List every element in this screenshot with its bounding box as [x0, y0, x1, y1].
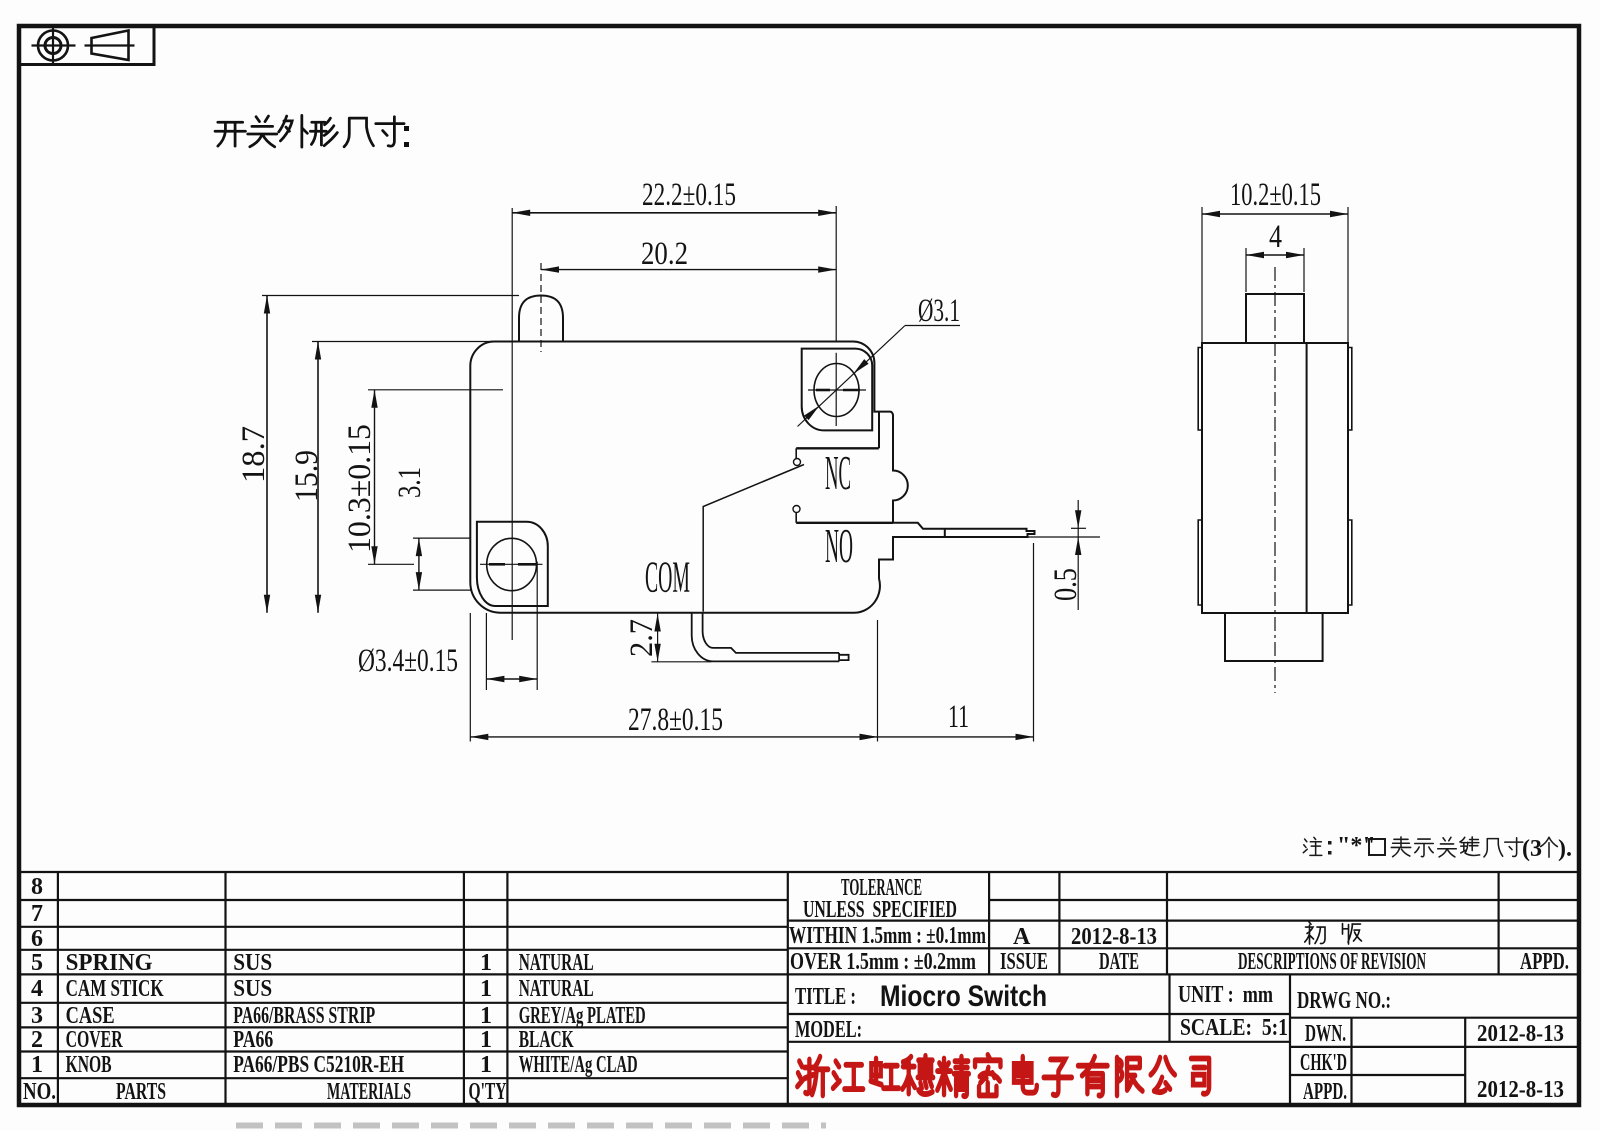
- svg-text:1: 1: [480, 1003, 492, 1029]
- svg-text:APPD.: APPD.: [1520, 949, 1569, 975]
- svg-text:DATE: DATE: [1099, 949, 1139, 975]
- svg-text:).: ).: [1558, 836, 1572, 862]
- svg-text:1: 1: [31, 1052, 43, 1078]
- svg-text:7: 7: [31, 901, 43, 927]
- svg-text:TITLE :: TITLE :: [795, 984, 856, 1010]
- svg-text:(3: (3: [1522, 836, 1542, 862]
- svg-text:PA66/PBS C5210R-EH: PA66/PBS C5210R-EH: [233, 1052, 404, 1078]
- svg-text:NO: NO: [825, 518, 853, 573]
- svg-text:NATURAL: NATURAL: [519, 976, 594, 1002]
- svg-text:CHK'D: CHK'D: [1300, 1050, 1347, 1076]
- svg-text:ISSUE: ISSUE: [1000, 949, 1048, 975]
- svg-text:NO.: NO.: [23, 1079, 56, 1105]
- svg-text:PARTS: PARTS: [116, 1079, 166, 1105]
- svg-text:Q'TY: Q'TY: [469, 1079, 507, 1105]
- svg-text:Ø3.4±0.15: Ø3.4±0.15: [358, 643, 458, 679]
- svg-text:2012-8-13: 2012-8-13: [1477, 1021, 1564, 1047]
- svg-text:WHITE/Ag CLAD: WHITE/Ag CLAD: [519, 1052, 638, 1078]
- svg-text:Ø3.1: Ø3.1: [918, 293, 960, 329]
- svg-text:6: 6: [31, 926, 43, 952]
- svg-text:"*": "*": [1337, 833, 1376, 859]
- svg-text:18.7: 18.7: [236, 426, 272, 483]
- svg-text:15.9: 15.9: [289, 450, 325, 502]
- svg-text:3: 3: [31, 1003, 43, 1029]
- svg-text:3.1: 3.1: [392, 467, 428, 498]
- svg-text:1: 1: [480, 1052, 492, 1078]
- svg-text:CASE: CASE: [66, 1003, 115, 1029]
- svg-text:2012-8-13: 2012-8-13: [1477, 1077, 1564, 1103]
- svg-text:5: 5: [31, 950, 43, 976]
- svg-text:A: A: [1013, 924, 1031, 950]
- svg-text:GREY/Ag PLATED: GREY/Ag PLATED: [519, 1003, 646, 1029]
- svg-text:11: 11: [948, 699, 969, 735]
- svg-text:SCALE: 5:1: SCALE: 5:1: [1180, 1015, 1288, 1041]
- svg-text:COM: COM: [645, 553, 690, 602]
- svg-text:2: 2: [31, 1027, 43, 1053]
- svg-text:NC: NC: [825, 445, 851, 500]
- svg-text:MATERIALS: MATERIALS: [327, 1079, 411, 1105]
- svg-text:1: 1: [480, 1027, 492, 1053]
- svg-text:DWN.: DWN.: [1305, 1021, 1346, 1047]
- svg-text:22.2±0.15: 22.2±0.15: [642, 177, 736, 213]
- svg-text:4: 4: [1269, 219, 1282, 255]
- svg-text:APPD.: APPD.: [1303, 1079, 1347, 1105]
- svg-text:WITHIN 1.5mm : ±0.1mm: WITHIN 1.5mm : ±0.1mm: [789, 923, 986, 949]
- svg-text:8: 8: [31, 874, 43, 900]
- svg-text:2.7: 2.7: [624, 619, 660, 657]
- svg-text:PA66/BRASS STRIP: PA66/BRASS STRIP: [233, 1003, 375, 1029]
- svg-text:CAM STICK: CAM STICK: [66, 976, 164, 1002]
- svg-text:UNLESS SPECIFIED: UNLESS SPECIFIED: [803, 897, 957, 923]
- svg-text:BLACK: BLACK: [519, 1027, 574, 1053]
- svg-text:27.8±0.15: 27.8±0.15: [628, 702, 723, 738]
- svg-text:20.2: 20.2: [641, 236, 688, 272]
- svg-text:1: 1: [480, 976, 492, 1002]
- svg-text:OVER 1.5mm : ±0.2mm: OVER 1.5mm : ±0.2mm: [790, 949, 976, 975]
- svg-text:NATURAL: NATURAL: [519, 950, 594, 976]
- svg-text:10.2±0.15: 10.2±0.15: [1230, 177, 1321, 213]
- svg-text:COVER: COVER: [66, 1027, 123, 1053]
- svg-text:MODEL:: MODEL:: [795, 1017, 862, 1043]
- svg-text:2012-8-13: 2012-8-13: [1071, 924, 1157, 950]
- svg-text:KNOB: KNOB: [66, 1052, 112, 1078]
- svg-text:1: 1: [480, 950, 492, 976]
- svg-text:DRWG NO.:: DRWG NO.:: [1297, 988, 1391, 1014]
- svg-text:SPRING: SPRING: [66, 950, 153, 976]
- svg-text:PA66: PA66: [233, 1027, 273, 1053]
- svg-text:UNIT : mm: UNIT : mm: [1178, 982, 1273, 1008]
- svg-text:SUS: SUS: [233, 976, 272, 1002]
- svg-text:SUS: SUS: [233, 950, 272, 976]
- svg-text:Miocro Switch: Miocro Switch: [880, 980, 1047, 1013]
- svg-text:4: 4: [31, 976, 43, 1002]
- svg-text:0.5: 0.5: [1048, 568, 1084, 601]
- svg-text:DESCRIPTIONS OF REVISION: DESCRIPTIONS OF REVISION: [1238, 949, 1426, 975]
- svg-text:10.3±0.15: 10.3±0.15: [342, 424, 378, 553]
